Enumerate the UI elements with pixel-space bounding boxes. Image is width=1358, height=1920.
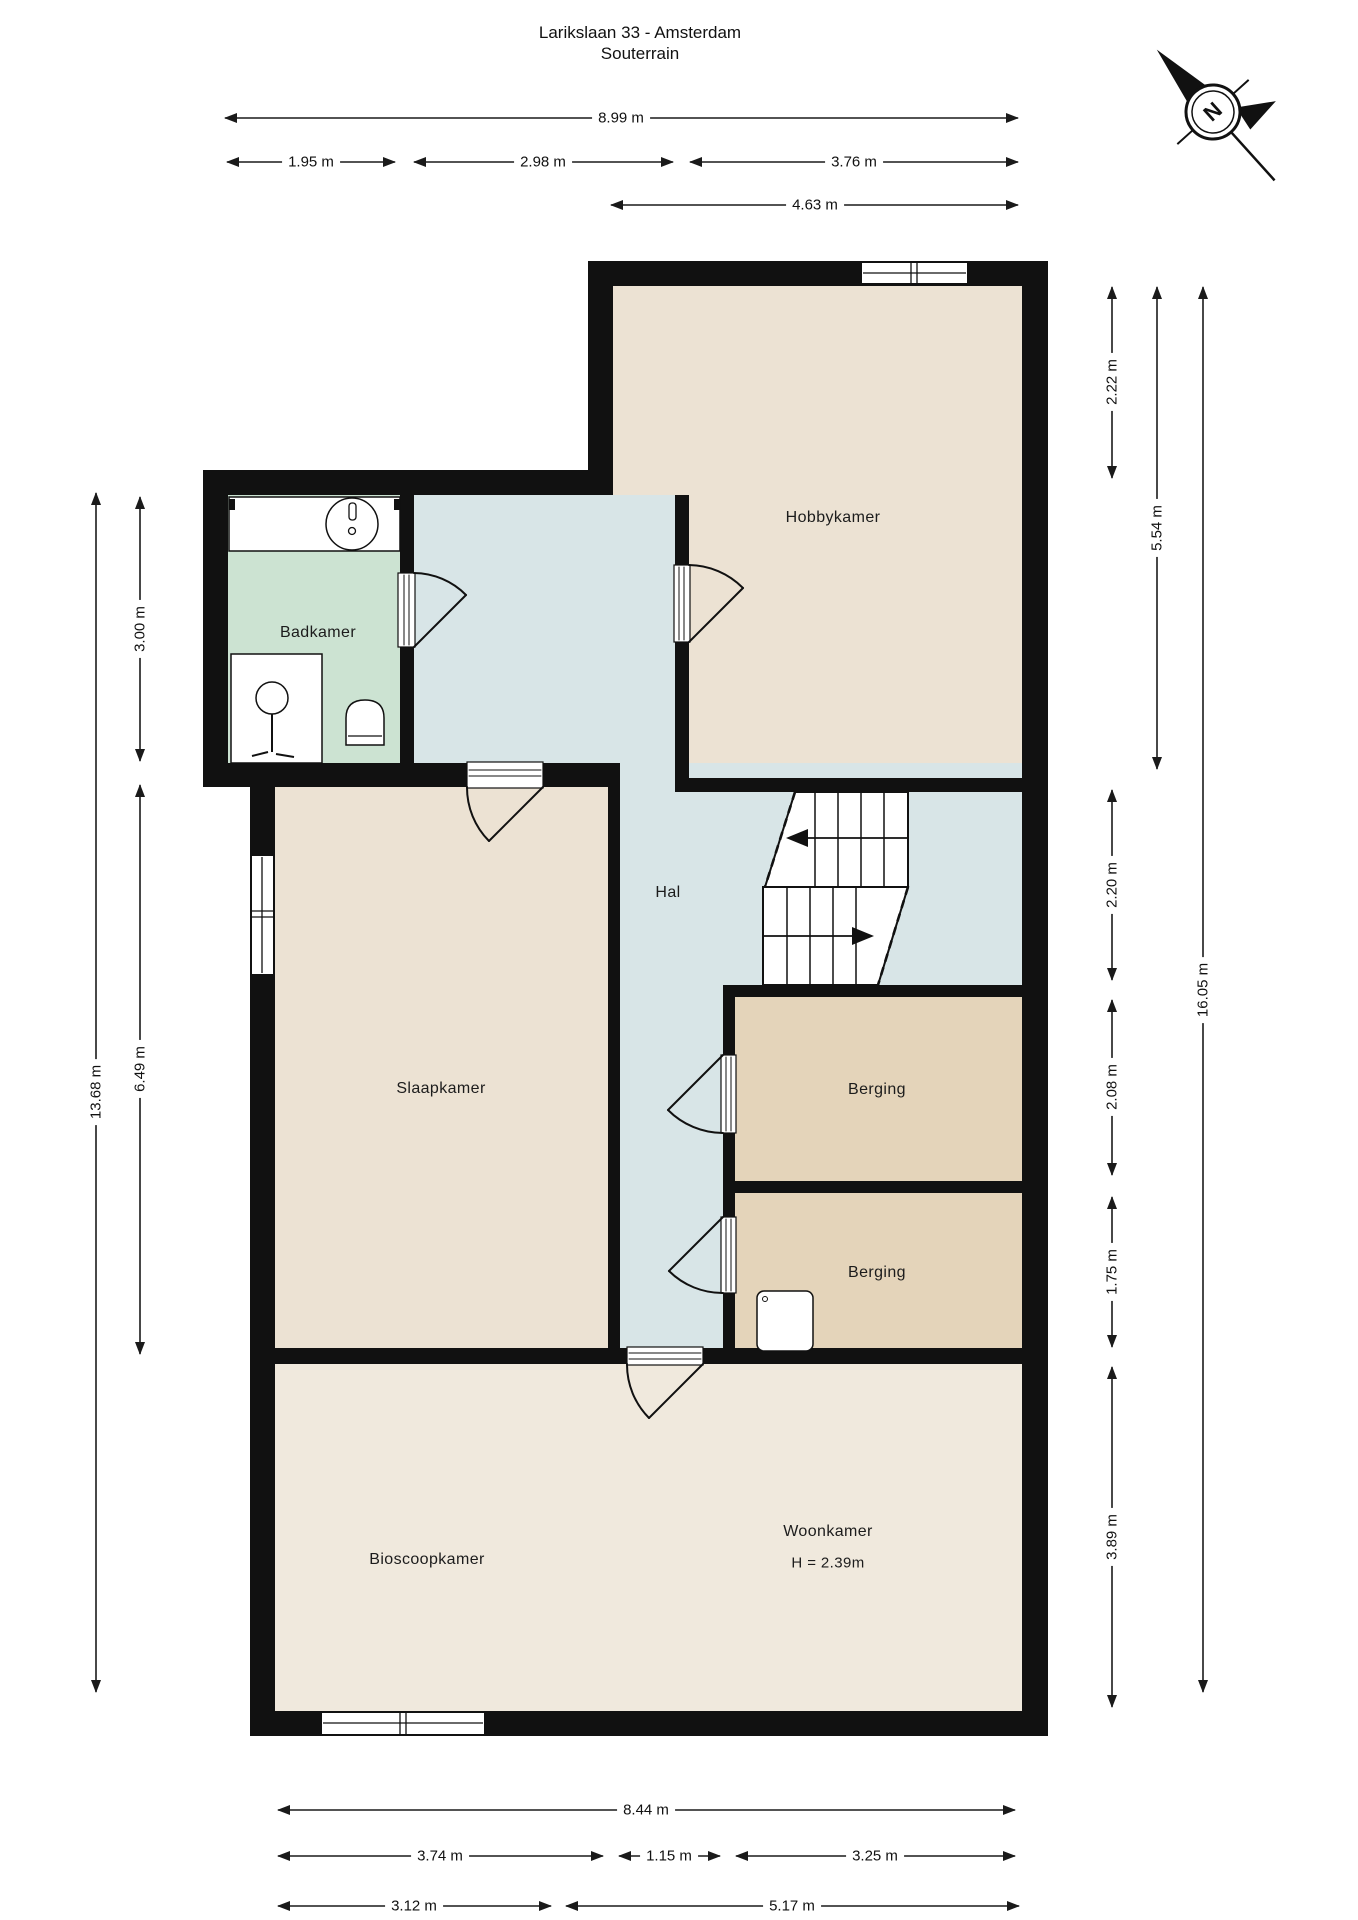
dim-right-4: 2.08 m [1104, 1058, 1121, 1116]
dim-left-1: 3.00 m [132, 600, 149, 658]
dim-right-2: 5.54 m [1149, 499, 1166, 557]
dim-right-1: 2.22 m [1104, 353, 1121, 411]
room-label-slaapkamer: Slaapkamer [396, 1080, 485, 1098]
wall [1022, 261, 1048, 1736]
floorplan-page: Larikslaan 33 - Amsterdam Souterrain N H… [0, 0, 1358, 1920]
dim-left-total: 13.68 m [88, 1059, 105, 1125]
wall [203, 470, 228, 787]
room-label-woonkamer-height: H = 2.39m [791, 1555, 864, 1572]
dim-top-3: 3.76 m [825, 154, 883, 171]
wall [735, 1181, 1022, 1193]
dim-bottom-3: 3.25 m [846, 1848, 904, 1865]
wall [723, 985, 1022, 997]
dim-bottom-total: 8.44 m [617, 1802, 675, 1819]
plan-subtitle: Souterrain [601, 44, 679, 64]
room-label-woonkamer: Woonkamer [783, 1523, 873, 1541]
dim-bottom-1: 3.74 m [411, 1848, 469, 1865]
shower [231, 654, 322, 763]
room-label-hal: Hal [655, 884, 680, 902]
wall [588, 261, 613, 495]
wall [203, 763, 620, 787]
plan-title: Larikslaan 33 - Amsterdam [539, 23, 741, 43]
dim-top-4: 4.63 m [786, 197, 844, 214]
dim-right-6: 3.89 m [1104, 1508, 1121, 1566]
room-label-hobbykamer: Hobbykamer [786, 509, 881, 527]
room-label-bioscoopkamer: Bioscoopkamer [369, 1551, 484, 1569]
wall [203, 470, 613, 495]
window [251, 855, 274, 975]
dim-top-total: 8.99 m [592, 110, 650, 127]
dim-right-5: 1.75 m [1104, 1243, 1121, 1301]
dim-right-total: 16.05 m [1195, 957, 1212, 1023]
room-hal-corridor-floor [620, 763, 723, 1348]
wall [675, 495, 689, 792]
staircase [763, 792, 908, 985]
wall [588, 261, 1048, 286]
wall [723, 985, 735, 1364]
room-slaapkamer-floor [275, 787, 608, 1348]
room-label-berging-1: Berging [848, 1081, 906, 1099]
boiler-icon [757, 1291, 813, 1351]
dim-bottom-4: 3.12 m [385, 1898, 443, 1915]
window [861, 262, 968, 284]
room-label-berging-2: Berging [848, 1264, 906, 1282]
room-label-badkamer: Badkamer [280, 624, 356, 642]
window [321, 1712, 485, 1735]
toilet-icon [346, 700, 384, 745]
wall [675, 778, 1022, 792]
dim-left-2: 6.49 m [132, 1040, 149, 1098]
dim-bottom-5: 5.17 m [763, 1898, 821, 1915]
dim-top-2: 2.98 m [514, 154, 572, 171]
floorplan-drawing [0, 0, 1358, 1920]
dim-top-1: 1.95 m [282, 154, 340, 171]
dim-bottom-2: 1.15 m [640, 1848, 698, 1865]
dim-right-3: 2.20 m [1104, 856, 1121, 914]
wall [608, 787, 620, 1348]
room-hal-floor [414, 495, 675, 763]
